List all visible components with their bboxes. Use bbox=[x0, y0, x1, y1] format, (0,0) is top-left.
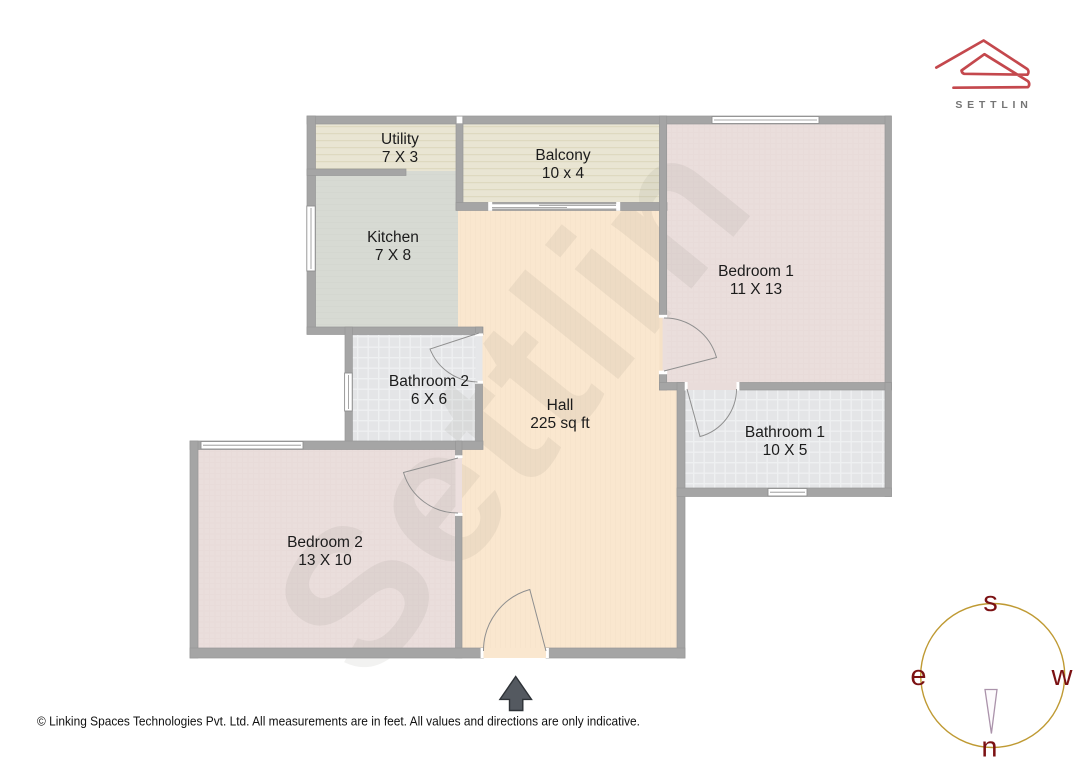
svg-text:Bathroom 1: Bathroom 1 bbox=[745, 424, 825, 441]
svg-text:Kitchen: Kitchen bbox=[367, 229, 419, 246]
svg-text:7 X 3: 7 X 3 bbox=[382, 149, 418, 166]
svg-text:s: s bbox=[983, 586, 998, 618]
svg-text:w: w bbox=[1051, 660, 1074, 692]
svg-text:6 X 6: 6 X 6 bbox=[411, 391, 447, 408]
svg-text:7 X 8: 7 X 8 bbox=[375, 247, 411, 264]
svg-text:Bathroom 2: Bathroom 2 bbox=[389, 373, 469, 390]
svg-text:Bedroom 1: Bedroom 1 bbox=[718, 263, 794, 280]
svg-text:10 X 5: 10 X 5 bbox=[763, 442, 808, 459]
svg-text:Bedroom 2: Bedroom 2 bbox=[287, 534, 363, 551]
svg-text:11 X 13: 11 X 13 bbox=[730, 281, 782, 298]
svg-text:Balcony: Balcony bbox=[535, 147, 590, 164]
svg-text:n: n bbox=[981, 732, 997, 764]
svg-text:e: e bbox=[910, 660, 926, 692]
svg-text:13 X 10: 13 X 10 bbox=[298, 552, 352, 569]
svg-text:10 x 4: 10 x 4 bbox=[542, 165, 585, 182]
svg-text:225 sq ft: 225 sq ft bbox=[530, 415, 590, 432]
svg-text:SETTLIN: SETTLIN bbox=[955, 99, 1032, 111]
svg-text:Utility: Utility bbox=[381, 131, 419, 148]
svg-text:Hall: Hall bbox=[547, 397, 574, 414]
svg-text:© Linking Spaces Technologies: © Linking Spaces Technologies Pvt. Ltd. … bbox=[37, 714, 640, 729]
